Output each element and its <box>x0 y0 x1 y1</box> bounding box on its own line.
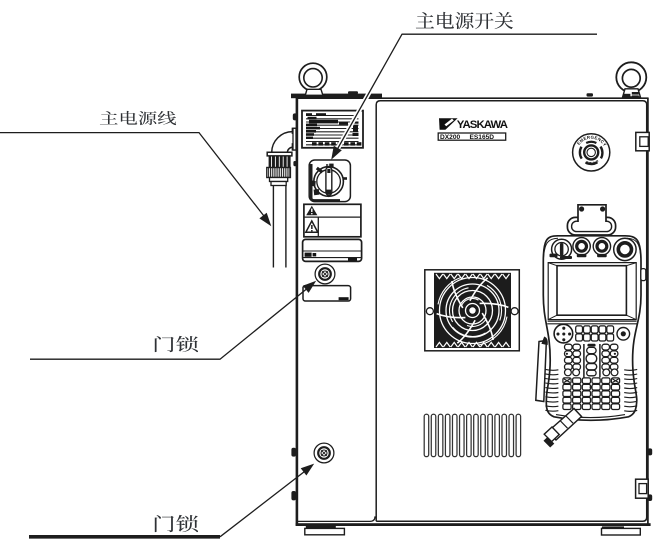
svg-text:ES165D: ES165D <box>470 134 495 141</box>
svg-text:YASKAWA: YASKAWA <box>457 119 508 131</box>
svg-text:DX200: DX200 <box>440 134 460 141</box>
